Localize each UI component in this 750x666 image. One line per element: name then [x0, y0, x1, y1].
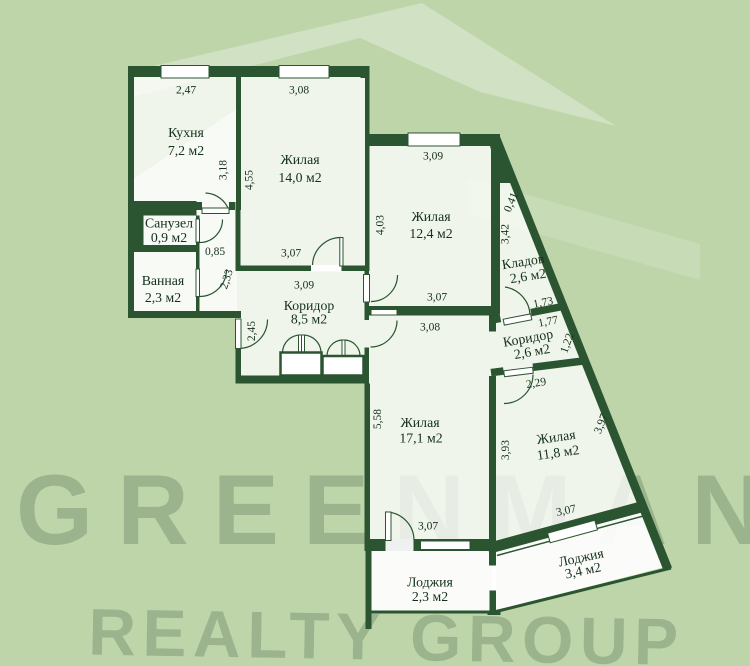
svg-text:5,58: 5,58: [372, 409, 384, 429]
svg-text:0,9 м2: 0,9 м2: [151, 230, 187, 245]
svg-text:2,3 м2: 2,3 м2: [412, 589, 448, 604]
svg-text:2,47: 2,47: [176, 85, 196, 97]
svg-text:3,93: 3,93: [500, 440, 512, 460]
svg-text:Жилая: Жилая: [400, 415, 440, 430]
svg-text:8,5 м2: 8,5 м2: [291, 312, 327, 327]
svg-text:12,4 м2: 12,4 м2: [409, 226, 452, 241]
svg-text:3,42: 3,42: [500, 224, 512, 244]
svg-text:7,2 м2: 7,2 м2: [168, 143, 204, 158]
svg-text:4,55: 4,55: [244, 170, 256, 190]
svg-text:3,09: 3,09: [294, 280, 314, 292]
svg-text:Лоджия: Лоджия: [407, 575, 453, 590]
svg-text:Жилая: Жилая: [411, 209, 451, 224]
svg-text:3,08: 3,08: [289, 85, 309, 97]
svg-text:3,09: 3,09: [423, 151, 443, 163]
svg-text:14,0 м2: 14,0 м2: [278, 170, 321, 185]
svg-text:Ванная: Ванная: [142, 273, 185, 288]
svg-text:4,03: 4,03: [375, 215, 387, 235]
svg-text:Санузел: Санузел: [145, 216, 193, 231]
svg-text:3,07: 3,07: [418, 521, 438, 533]
svg-text:0,85: 0,85: [205, 246, 225, 258]
svg-text:3,07: 3,07: [427, 292, 447, 304]
svg-text:17,1 м2: 17,1 м2: [399, 431, 442, 446]
svg-text:3,08: 3,08: [420, 322, 440, 334]
svg-text:Жилая: Жилая: [280, 152, 320, 167]
svg-text:2,45: 2,45: [246, 321, 258, 341]
svg-text:2,3 м2: 2,3 м2: [145, 290, 181, 305]
svg-text:3,07: 3,07: [281, 248, 301, 260]
svg-text:Кухня: Кухня: [168, 125, 204, 140]
svg-text:3,18: 3,18: [218, 160, 230, 180]
